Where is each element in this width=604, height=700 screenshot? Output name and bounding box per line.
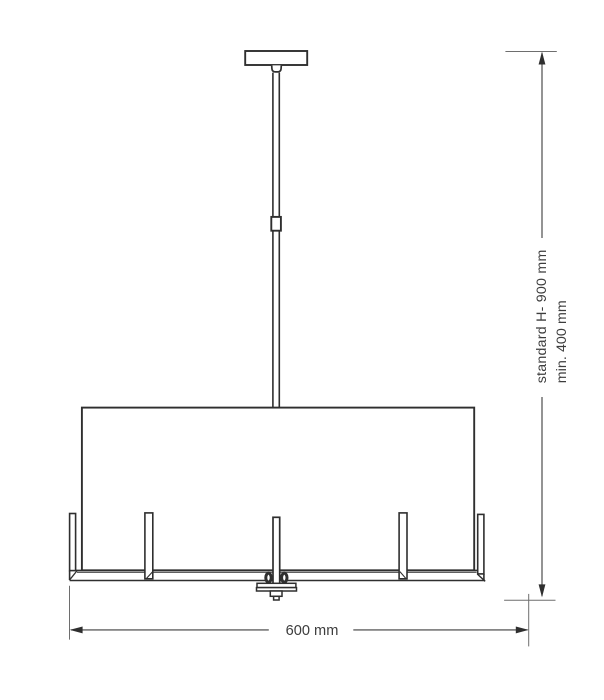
svg-text:standard H- 900 mm: standard H- 900 mm	[534, 249, 550, 383]
svg-text:min. 400 mm: min. 400 mm	[554, 300, 570, 383]
svg-text:600 mm: 600 mm	[286, 623, 339, 639]
